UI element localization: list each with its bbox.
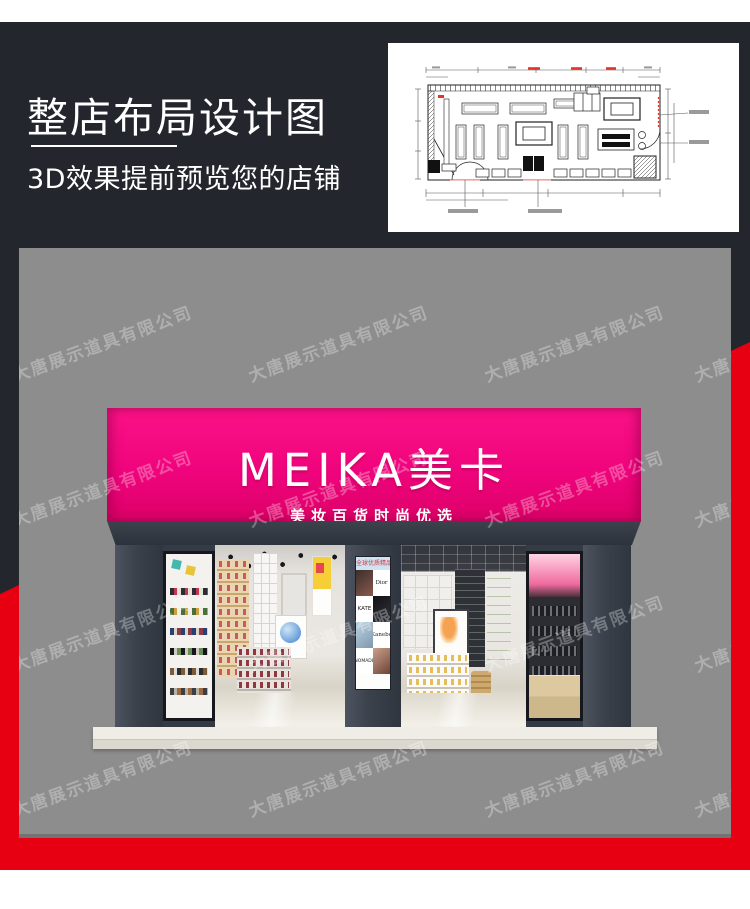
watermark-text: 大唐展示道具有限公司 bbox=[690, 588, 731, 676]
watermark-text: 大唐展示道具有限公司 bbox=[480, 588, 667, 676]
watermark-text: 大唐展示道具有限公司 bbox=[480, 733, 667, 821]
watermark-text: 大唐展示道具有限公司 bbox=[244, 733, 431, 821]
red-bottom-band bbox=[0, 838, 750, 870]
watermark-text: 大唐展示道具有限公司 bbox=[19, 298, 196, 386]
bottom-white-strip bbox=[0, 870, 750, 909]
watermark-layer: 大唐展示道具有限公司大唐展示道具有限公司大唐展示道具有限公司大唐展示道具有限公司… bbox=[19, 248, 731, 838]
watermark-text: 大唐展示道具有限公司 bbox=[690, 733, 731, 821]
watermark-text: 大唐展示道具有限公司 bbox=[480, 298, 667, 386]
red-accent-left bbox=[0, 585, 19, 870]
watermark-text: 大唐展示道具有限公司 bbox=[19, 588, 196, 676]
watermark-text: 大唐展示道具有限公司 bbox=[690, 443, 731, 531]
red-accent-right bbox=[731, 342, 750, 870]
watermark-text: 大唐展示道具有限公司 bbox=[244, 298, 431, 386]
page-title: 整店布局设计图 bbox=[27, 84, 347, 144]
floorplan-card bbox=[388, 43, 739, 232]
floorplan-svg bbox=[388, 43, 739, 232]
watermark-text: 大唐展示道具有限公司 bbox=[19, 443, 196, 531]
watermark-text: 大唐展示道具有限公司 bbox=[690, 298, 731, 386]
page-canvas: 整店布局设计图 3D效果提前预览您的店铺 bbox=[0, 0, 750, 909]
render-section: MEIKA美卡 美妆百货时尚优选 全球优质精品 Dior KATE bbox=[19, 248, 731, 838]
page-subtitle: 3D效果提前预览您的店铺 bbox=[27, 157, 357, 196]
watermark-text: 大唐展示道具有限公司 bbox=[480, 443, 667, 531]
watermark-text: 大唐展示道具有限公司 bbox=[19, 733, 196, 821]
title-underline bbox=[31, 145, 177, 147]
watermark-text: 大唐展示道具有限公司 bbox=[244, 443, 431, 531]
watermark-text: 大唐展示道具有限公司 bbox=[244, 588, 431, 676]
